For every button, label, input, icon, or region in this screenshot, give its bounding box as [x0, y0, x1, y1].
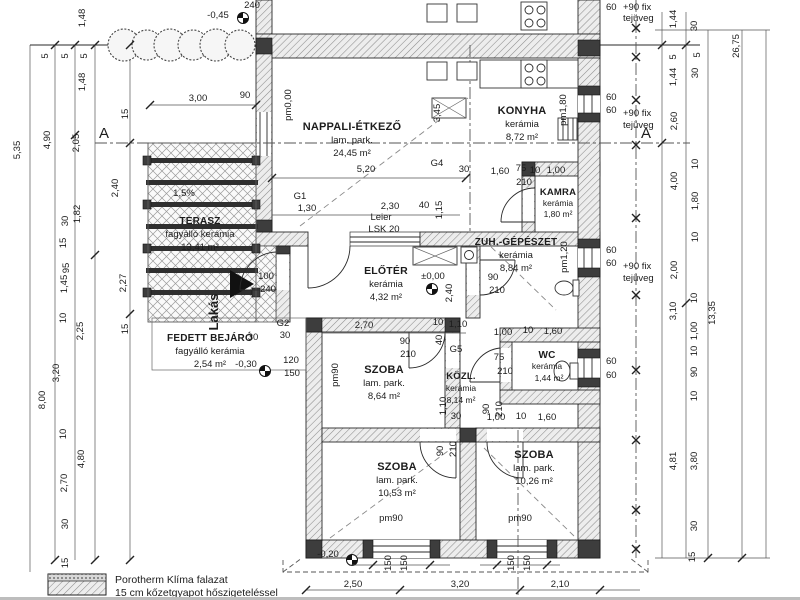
svg-text:1,60: 1,60: [491, 166, 510, 177]
svg-text:8,72 m²: 8,72 m²: [506, 132, 538, 143]
svg-text:2,40: 2,40: [444, 284, 455, 303]
svg-text:75: 75: [516, 163, 527, 174]
svg-text:5,20: 5,20: [357, 164, 376, 175]
svg-text:KONYHA: KONYHA: [498, 105, 547, 117]
svg-text:10,53 m²: 10,53 m²: [378, 488, 416, 499]
svg-text:+90 fix: +90 fix: [623, 261, 652, 272]
room-label-wc: WCkerámia1,44 m²: [532, 350, 564, 383]
level-marker-icon: [427, 284, 438, 295]
svg-text:210: 210: [489, 285, 505, 296]
svg-text:2,05: 2,05: [71, 134, 82, 153]
svg-text:100: 100: [258, 271, 274, 282]
svg-text:WC: WC: [538, 350, 555, 361]
stove-icon: [521, 60, 547, 88]
room-label-nappali: NAPPALI-ÉTKEZŐlam. park.24,45 m²: [303, 120, 402, 159]
svg-text:30: 30: [451, 411, 462, 422]
svg-text:150: 150: [506, 555, 517, 571]
boiler-icon: [461, 247, 477, 263]
svg-text:±0,00: ±0,00: [421, 271, 445, 282]
svg-text:-0,30: -0,30: [235, 359, 257, 370]
svg-text:-0,45: -0,45: [207, 10, 229, 21]
svg-text:40: 40: [434, 335, 445, 346]
svg-text:+90 fix: +90 fix: [623, 108, 652, 119]
svg-text:90: 90: [240, 90, 251, 101]
svg-text:90: 90: [435, 446, 446, 457]
svg-text:5: 5: [60, 53, 71, 58]
legend: Porotherm Klíma falazat 15 cm kőzetgyapo…: [48, 574, 278, 599]
svg-text:24,45 m²: 24,45 m²: [333, 148, 371, 159]
svg-text:210: 210: [400, 349, 416, 360]
floor-plan: A A NAPPALI-ÉTKEZŐlam. park.24,45 m² KON…: [0, 0, 800, 600]
svg-text:lam. park.: lam. park.: [513, 463, 555, 474]
room-label-konyha: KONYHAkerámia8,72 m²: [498, 105, 547, 143]
svg-text:1,00: 1,00: [689, 322, 700, 341]
svg-text:240: 240: [244, 0, 260, 11]
svg-text:60: 60: [606, 92, 617, 103]
svg-text:SZOBA: SZOBA: [364, 364, 404, 376]
svg-text:3,80: 3,80: [689, 452, 700, 471]
svg-text:8,00: 8,00: [37, 391, 48, 410]
svg-text:2,27: 2,27: [118, 274, 129, 293]
svg-text:240: 240: [260, 284, 276, 295]
svg-text:1,80: 1,80: [690, 192, 701, 211]
svg-text:40: 40: [419, 200, 430, 211]
svg-text:5: 5: [692, 52, 703, 57]
svg-text:210: 210: [497, 366, 513, 377]
svg-text:fagyálló kerámia: fagyálló kerámia: [175, 346, 245, 357]
svg-text:2,30: 2,30: [381, 201, 400, 212]
svg-text:15: 15: [60, 558, 71, 569]
svg-text:NAPPALI-ÉTKEZŐ: NAPPALI-ÉTKEZŐ: [303, 120, 402, 133]
svg-text:pm90: pm90: [508, 513, 532, 524]
svg-text:1,10: 1,10: [449, 319, 468, 330]
svg-text:10: 10: [689, 391, 700, 402]
svg-text:TERASZ: TERASZ: [179, 216, 220, 227]
svg-text:3,45: 3,45: [432, 104, 443, 123]
svg-text:1,44: 1,44: [668, 68, 679, 87]
svg-text:15: 15: [120, 324, 131, 335]
svg-text:15: 15: [58, 238, 69, 249]
right-dimension-chain: 1,44 30 5 5 26,75 1,44 30 2,60 10 4,00 1…: [668, 10, 742, 563]
svg-text:pm0,00: pm0,00: [283, 89, 294, 121]
svg-text:150: 150: [284, 368, 300, 379]
svg-text:10: 10: [523, 325, 534, 336]
svg-text:KAMRA: KAMRA: [540, 187, 576, 198]
svg-text:1,30: 1,30: [298, 203, 317, 214]
svg-text:2,00: 2,00: [669, 261, 680, 280]
svg-text:kerámia: kerámia: [543, 198, 574, 208]
window-60-labels: 60 60 60 60 60 60 60: [606, 2, 617, 381]
svg-text:SZOBA: SZOBA: [377, 461, 417, 473]
svg-text:3,00: 3,00: [189, 93, 208, 104]
svg-text:60: 60: [606, 258, 617, 269]
svg-text:120: 120: [283, 355, 299, 366]
svg-text:kerámia: kerámia: [446, 383, 477, 393]
svg-text:2,40: 2,40: [110, 179, 121, 198]
room-label-kozl: KÖZL.kerámia8,14 m²: [446, 371, 477, 405]
svg-text:lam. park.: lam. park.: [376, 475, 418, 486]
svg-text:15: 15: [120, 109, 131, 120]
svg-text:G2: G2: [277, 318, 290, 329]
svg-text:210: 210: [516, 177, 532, 188]
room-label-szoba1: SZOBAlam. park.8,64 m²: [363, 364, 405, 402]
svg-text:1,48: 1,48: [77, 73, 88, 92]
svg-text:26,75: 26,75: [731, 34, 742, 58]
svg-text:SZOBA: SZOBA: [514, 449, 554, 461]
bottom-dimension-chain: 2,50 3,20 2,10 150 150 150 150: [344, 555, 570, 590]
svg-text:pm1,80: pm1,80: [558, 94, 569, 126]
svg-text:1,48: 1,48: [77, 9, 88, 28]
svg-text:60: 60: [606, 356, 617, 367]
svg-text:30: 30: [690, 68, 701, 79]
svg-text:30: 30: [280, 330, 291, 341]
svg-text:1,00: 1,00: [494, 327, 513, 338]
svg-text:tejüveg: tejüveg: [623, 13, 654, 24]
svg-text:lam. park.: lam. park.: [363, 378, 405, 389]
svg-text:60: 60: [606, 245, 617, 256]
svg-text:30: 30: [60, 519, 71, 530]
front-door: [308, 246, 350, 288]
svg-text:2,70: 2,70: [355, 320, 374, 331]
svg-text:10: 10: [516, 411, 527, 422]
svg-text:1,44: 1,44: [668, 10, 679, 29]
svg-text:tejüveg: tejüveg: [623, 120, 654, 131]
svg-text:13,35: 13,35: [707, 301, 718, 325]
svg-text:1,15: 1,15: [434, 201, 445, 220]
basin-icon: [555, 280, 579, 296]
svg-text:5: 5: [668, 54, 679, 59]
party-wall: [256, 34, 600, 58]
svg-text:60: 60: [606, 370, 617, 381]
svg-text:210: 210: [448, 441, 459, 457]
svg-text:4,80: 4,80: [76, 450, 87, 469]
svg-text:3,20: 3,20: [51, 364, 62, 383]
svg-text:2,50: 2,50: [344, 579, 363, 590]
svg-text:30: 30: [60, 216, 71, 227]
svg-text:kerámia: kerámia: [369, 279, 404, 290]
svg-text:2,10: 2,10: [551, 579, 570, 590]
svg-text:60: 60: [606, 105, 617, 116]
upper-unit-fragment: [256, 0, 600, 58]
svg-text:1,44 m²: 1,44 m²: [535, 373, 564, 383]
svg-text:10: 10: [690, 159, 701, 170]
svg-text:8,14 m²: 8,14 m²: [447, 395, 476, 405]
svg-text:15: 15: [687, 552, 698, 563]
svg-text:10: 10: [58, 313, 69, 324]
room-label-zuh: ZUH.-GÉPÉSZETkerámia8,84 m²: [475, 235, 558, 274]
svg-text:4,81: 4,81: [668, 452, 679, 471]
svg-text:13,41 m²: 13,41 m²: [181, 242, 219, 253]
svg-text:ZUH.-GÉPÉSZET: ZUH.-GÉPÉSZET: [475, 235, 558, 248]
svg-text:3,10: 3,10: [668, 302, 679, 321]
svg-text:LSK 20: LSK 20: [368, 224, 399, 235]
room-label-eloter: ELŐTÉRkerámia4,32 m²: [364, 264, 408, 303]
svg-text:1,5%: 1,5%: [173, 188, 195, 199]
room-label-szoba2: SZOBAlam. park.10,53 m²: [376, 461, 418, 499]
svg-text:fagyálló kerámia: fagyálló kerámia: [165, 229, 235, 240]
svg-text:pm90: pm90: [330, 363, 341, 387]
svg-text:90: 90: [488, 272, 499, 283]
svg-text:G4: G4: [431, 158, 444, 169]
svg-text:G1: G1: [294, 191, 307, 202]
svg-text:30: 30: [459, 164, 470, 175]
svg-text:75: 75: [494, 352, 505, 363]
svg-text:1,45: 1,45: [59, 275, 70, 294]
svg-text:8,64 m²: 8,64 m²: [368, 391, 400, 402]
svg-text:lam. park.: lam. park.: [331, 135, 373, 146]
chair-icon: [457, 62, 477, 80]
svg-text:60: 60: [606, 2, 617, 13]
svg-text:150: 150: [383, 555, 394, 571]
svg-text:tejüveg: tejüveg: [623, 273, 654, 284]
svg-text:1,60: 1,60: [544, 326, 563, 337]
svg-text:10: 10: [689, 346, 700, 357]
svg-text:pm90: pm90: [379, 513, 403, 524]
svg-text:10: 10: [690, 232, 701, 243]
svg-text:10: 10: [689, 293, 700, 304]
svg-text:95: 95: [61, 263, 72, 274]
svg-text:1,10: 1,10: [438, 397, 449, 416]
svg-text:10: 10: [58, 429, 69, 440]
svg-text:2,25: 2,25: [75, 322, 86, 341]
room-label-kamra: KAMRAkerámia1,80 m²: [540, 187, 576, 219]
svg-text:4,90: 4,90: [42, 131, 53, 150]
level-marker-icon: [347, 555, 358, 566]
svg-text:G5: G5: [450, 344, 463, 355]
svg-text:KÖZL.: KÖZL.: [446, 371, 476, 382]
svg-text:10: 10: [433, 317, 444, 328]
svg-text:1,60: 1,60: [538, 412, 557, 423]
svg-text:4,00: 4,00: [669, 172, 680, 191]
chair-icon: [427, 62, 447, 80]
svg-text:3,20: 3,20: [451, 579, 470, 590]
svg-text:30: 30: [689, 521, 700, 532]
svg-text:2,54 m²: 2,54 m²: [194, 359, 226, 370]
svg-text:kerámia: kerámia: [499, 250, 534, 261]
svg-text:4,32 m²: 4,32 m²: [370, 292, 402, 303]
section-marker-a-left: A: [99, 125, 109, 142]
level-marker-icon: [238, 13, 249, 24]
svg-text:150: 150: [399, 555, 410, 571]
svg-text:30: 30: [248, 332, 259, 343]
eaves-line: [283, 558, 648, 572]
svg-text:Lakás: Lakás: [206, 294, 221, 331]
svg-text:30: 30: [689, 21, 700, 32]
svg-text:8,84 m²: 8,84 m²: [500, 263, 532, 274]
svg-text:FEDETT BEJÁRÓ: FEDETT BEJÁRÓ: [167, 331, 253, 344]
washer-icon: [413, 247, 457, 265]
svg-text:1,00: 1,00: [547, 165, 566, 176]
svg-text:90: 90: [689, 367, 700, 378]
svg-text:ELŐTÉR: ELŐTÉR: [364, 264, 408, 277]
svg-text:kerámia: kerámia: [505, 119, 540, 130]
svg-text:1,00: 1,00: [487, 412, 506, 423]
legend-line1: Porotherm Klíma falazat: [115, 574, 228, 586]
svg-text:10,26 m²: 10,26 m²: [515, 476, 553, 487]
svg-text:2,70: 2,70: [59, 474, 70, 493]
svg-text:+90 fix: +90 fix: [623, 2, 652, 13]
svg-text:pm1,20: pm1,20: [559, 241, 570, 273]
svg-text:5: 5: [40, 53, 51, 58]
svg-text:Leier: Leier: [370, 212, 391, 223]
svg-text:2,60: 2,60: [669, 112, 680, 131]
room-label-szoba3: SZOBAlam. park.10,26 m²: [513, 449, 555, 487]
svg-text:5,35: 5,35: [12, 141, 23, 160]
svg-text:90: 90: [400, 336, 411, 347]
level-marker-icon: [260, 366, 271, 377]
svg-text:5: 5: [79, 53, 90, 58]
svg-text:kerámia: kerámia: [532, 361, 563, 371]
svg-text:150: 150: [522, 555, 533, 571]
svg-text:1,82: 1,82: [72, 205, 83, 224]
svg-text:-0,20: -0,20: [317, 549, 339, 560]
svg-text:10: 10: [530, 165, 541, 176]
svg-text:1,80 m²: 1,80 m²: [544, 209, 573, 219]
